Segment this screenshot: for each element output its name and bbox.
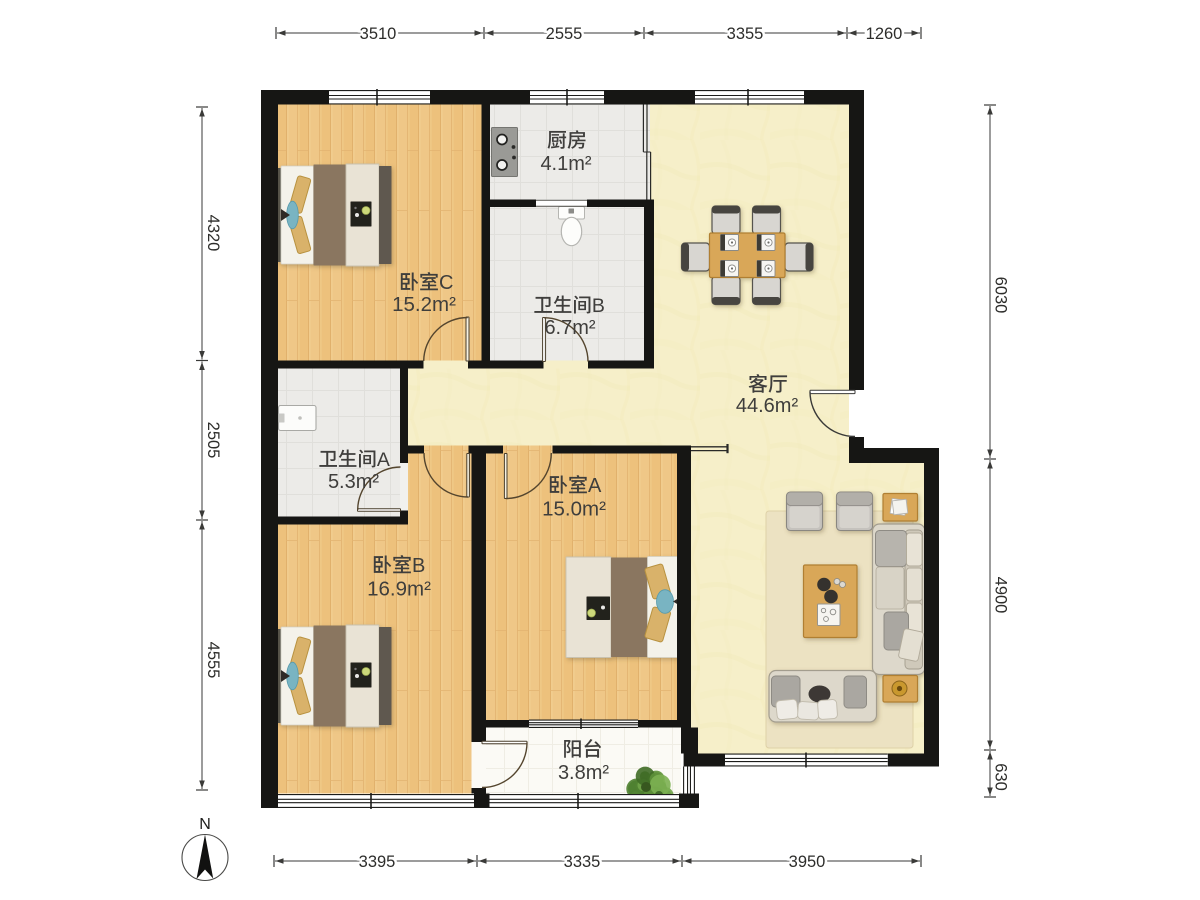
svg-text:16.9m²: 16.9m² (367, 578, 431, 601)
svg-text:2505: 2505 (204, 422, 222, 459)
svg-text:4.1m²: 4.1m² (540, 153, 591, 175)
svg-text:3335: 3335 (564, 853, 601, 871)
svg-text:4320: 4320 (204, 215, 222, 252)
svg-text:B: B (412, 555, 425, 577)
svg-text:1260: 1260 (866, 25, 903, 43)
svg-text:6.7m²: 6.7m² (544, 317, 595, 339)
svg-text:5.3m²: 5.3m² (328, 471, 379, 493)
svg-text:B: B (592, 295, 605, 317)
svg-text:6030: 6030 (992, 277, 1010, 314)
svg-text:4900: 4900 (992, 577, 1010, 614)
svg-text:3395: 3395 (359, 853, 396, 871)
svg-text:2555: 2555 (546, 25, 583, 43)
svg-text:N: N (199, 816, 211, 833)
svg-text:3355: 3355 (727, 25, 764, 43)
svg-text:4555: 4555 (204, 642, 222, 679)
svg-text:630: 630 (992, 763, 1010, 791)
svg-text:15.2m²: 15.2m² (392, 293, 456, 316)
svg-text:3.8m²: 3.8m² (558, 762, 609, 784)
svg-text:3510: 3510 (360, 25, 397, 43)
svg-text:15.0m²: 15.0m² (542, 498, 606, 521)
svg-text:3950: 3950 (789, 853, 826, 871)
svg-text:A: A (588, 475, 602, 497)
svg-text:C: C (439, 272, 453, 294)
svg-text:A: A (377, 449, 390, 471)
svg-text:44.6m²: 44.6m² (736, 395, 799, 417)
